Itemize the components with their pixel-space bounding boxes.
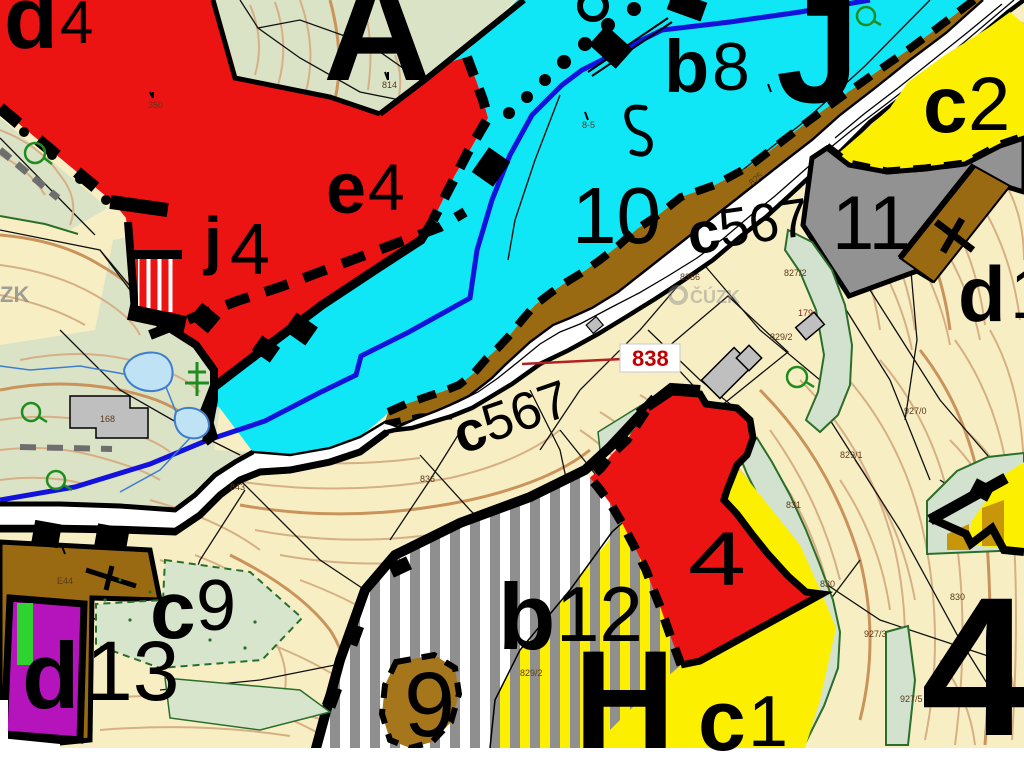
- svg-text:j: j: [203, 204, 222, 276]
- svg-text:A: A: [323, 0, 431, 112]
- svg-text:4: 4: [688, 517, 746, 602]
- svg-text:d: d: [958, 250, 1006, 338]
- svg-text:11: 11: [832, 181, 911, 266]
- svg-text:927/0: 927/0: [904, 406, 927, 416]
- svg-text:4: 4: [921, 556, 1024, 764]
- svg-text:13: 13: [86, 624, 179, 718]
- svg-text:838: 838: [632, 346, 669, 371]
- svg-text:8356: 8356: [680, 272, 700, 282]
- svg-text:ZK: ZK: [0, 282, 29, 307]
- svg-text:b: b: [664, 25, 709, 108]
- svg-text:829/1: 829/1: [840, 450, 863, 460]
- svg-text:9: 9: [404, 654, 455, 756]
- svg-text:831: 831: [786, 500, 801, 510]
- svg-text:829/2: 829/2: [770, 332, 793, 342]
- svg-text:8: 8: [712, 29, 750, 105]
- svg-text:J: J: [776, 0, 859, 134]
- svg-text:843: 843: [230, 482, 245, 492]
- svg-text:179: 179: [798, 308, 813, 318]
- svg-text:836: 836: [420, 474, 435, 484]
- svg-text:9: 9: [196, 566, 236, 646]
- svg-text:ČÚZK: ČÚZK: [690, 286, 740, 307]
- svg-text:E44: E44: [57, 576, 73, 586]
- svg-text:829/2: 829/2: [520, 668, 543, 678]
- svg-text:b: b: [498, 564, 555, 669]
- svg-text:2: 2: [968, 62, 1010, 147]
- svg-text:8-5: 8-5: [582, 120, 595, 130]
- svg-text:927/3: 927/3: [864, 629, 887, 639]
- svg-text:e: e: [326, 149, 366, 229]
- svg-text:c: c: [923, 60, 968, 149]
- svg-text:c: c: [698, 673, 746, 764]
- svg-text:830: 830: [820, 579, 835, 589]
- svg-text:927/5: 927/5: [900, 694, 923, 704]
- svg-text:H: H: [574, 621, 675, 764]
- svg-text:830: 830: [950, 592, 965, 602]
- svg-text:4: 4: [60, 0, 93, 56]
- svg-text:567: 567: [715, 187, 813, 259]
- svg-text:350: 350: [148, 100, 163, 110]
- svg-text:4: 4: [368, 150, 405, 224]
- svg-text:d: d: [4, 0, 58, 67]
- svg-text:4: 4: [230, 210, 270, 290]
- svg-text:168: 168: [100, 414, 115, 424]
- svg-text:814: 814: [382, 80, 397, 90]
- svg-text:1: 1: [748, 682, 788, 762]
- svg-text:827/2: 827/2: [784, 268, 807, 278]
- svg-text:d: d: [22, 623, 79, 728]
- svg-text:1: 1: [1010, 254, 1024, 334]
- svg-text:10: 10: [572, 171, 661, 260]
